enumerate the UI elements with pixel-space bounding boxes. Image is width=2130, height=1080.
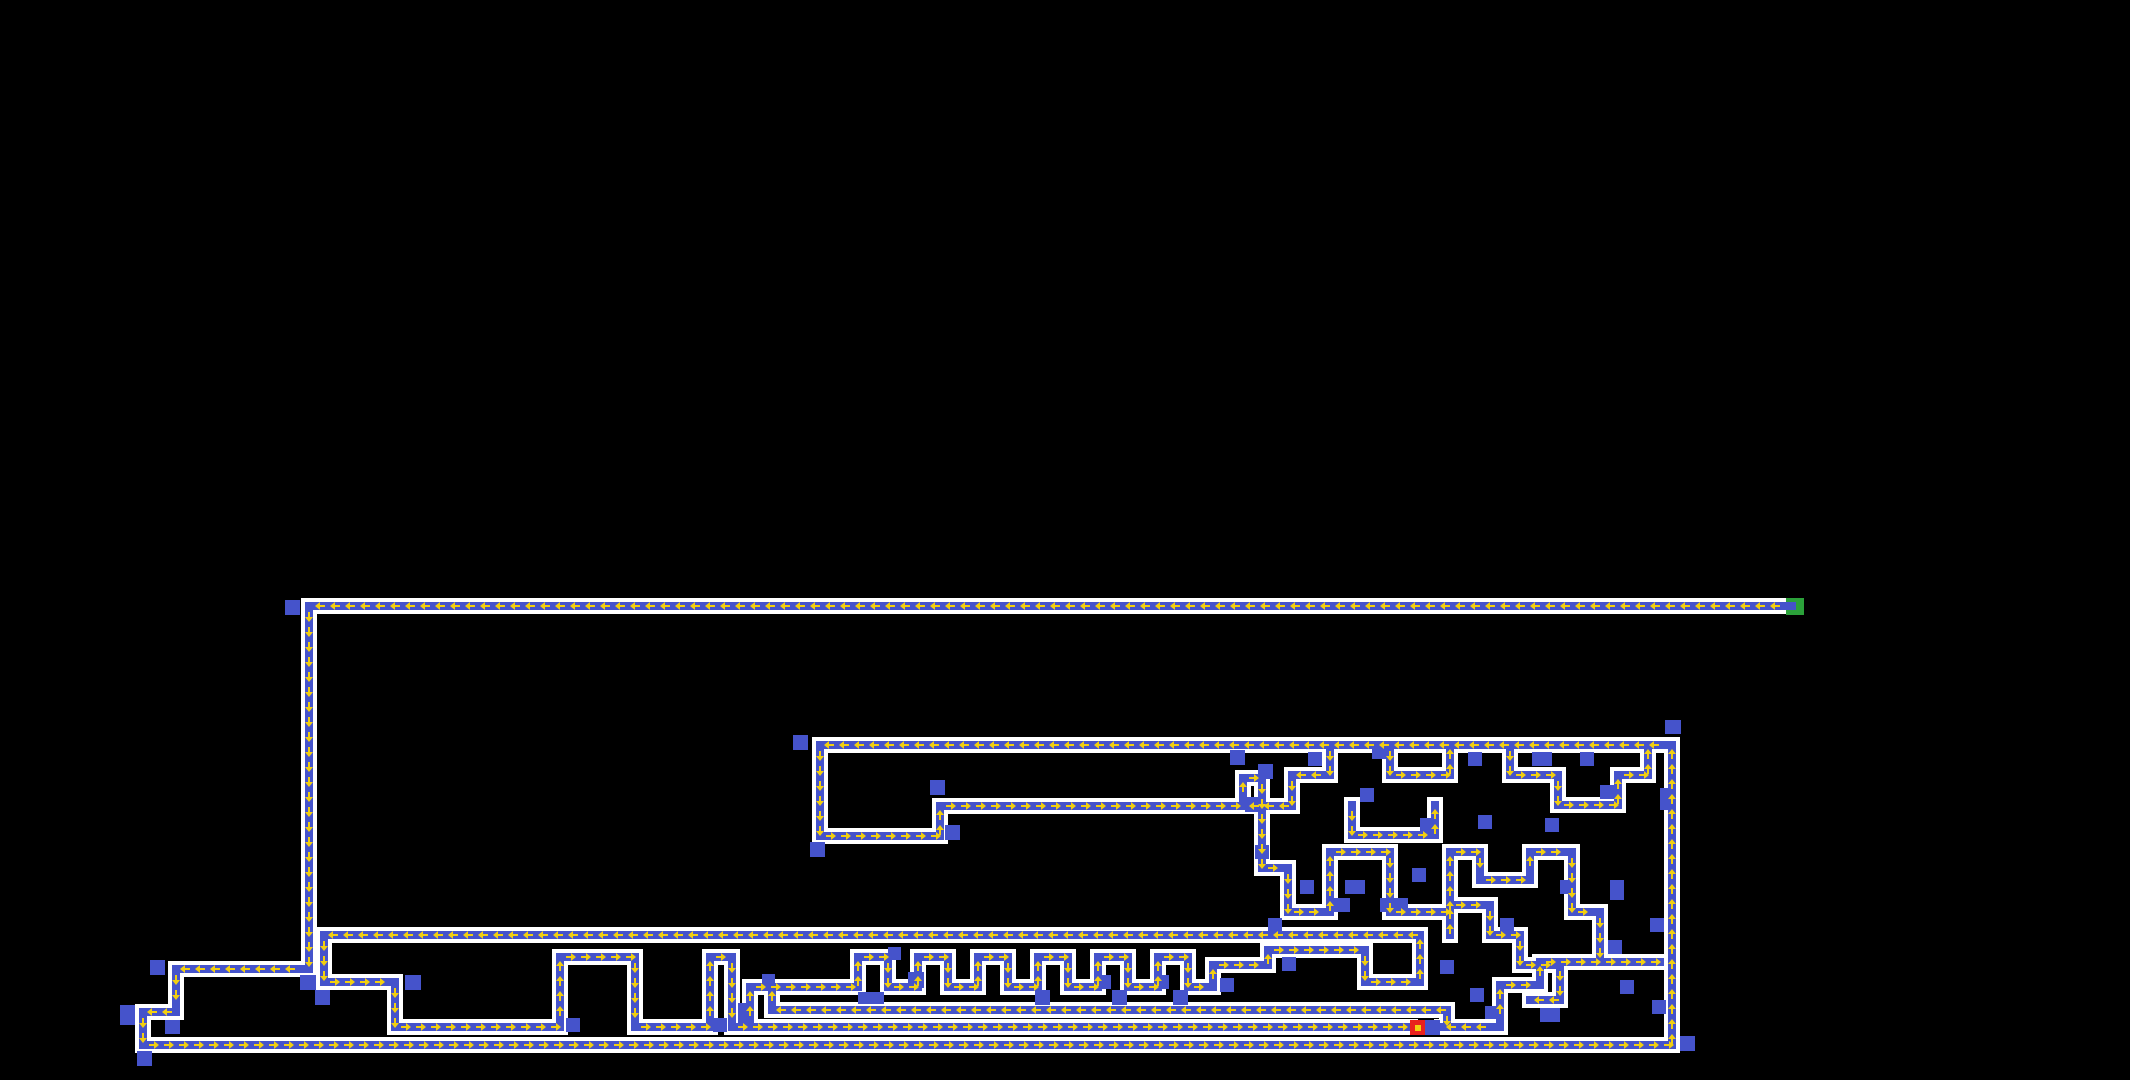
corridor-path [816, 741, 1676, 749]
blue-block [1230, 750, 1245, 765]
blue-block [810, 842, 825, 857]
corridor-path [139, 1041, 1676, 1049]
blue-block [908, 972, 924, 988]
blue-block [1035, 990, 1050, 1005]
blue-block [315, 990, 330, 1005]
blue-block [150, 960, 165, 975]
corridor-path [631, 953, 639, 1031]
blue-block [137, 1051, 152, 1066]
corridor-path [556, 953, 639, 961]
blue-block [1372, 745, 1392, 759]
blue-block [1665, 720, 1681, 734]
blue-block [1300, 880, 1314, 894]
corridor-path [1348, 831, 1439, 839]
corridor-path [768, 1006, 1451, 1014]
blue-block [738, 1003, 749, 1027]
blue-block [1097, 975, 1111, 989]
corridor-path [320, 978, 399, 986]
blue-block [1485, 1006, 1499, 1019]
corridor-path [1416, 931, 1424, 986]
blue-block [165, 1020, 180, 1034]
blue-block [1155, 975, 1169, 989]
blue-block [1412, 868, 1426, 882]
blue-block [1468, 752, 1482, 766]
corridor-path [1554, 801, 1622, 809]
blue-block [1560, 880, 1574, 894]
corridor-path [1438, 1023, 1504, 1031]
corridor-path [1596, 958, 1664, 966]
corridor-path [320, 931, 1424, 939]
blue-block [1112, 990, 1127, 1005]
blue-block [1425, 1020, 1440, 1035]
corridor-path [307, 602, 1796, 610]
blue-block [1540, 1008, 1560, 1022]
blue-block [300, 975, 316, 990]
blue-block [120, 1005, 135, 1025]
blue-block [1610, 880, 1624, 900]
corridor-path [816, 741, 824, 840]
blue-block [945, 825, 960, 840]
blue-block [1660, 788, 1674, 810]
corridor-path [768, 983, 776, 1014]
blue-block [566, 1018, 580, 1032]
blue-block [888, 947, 901, 960]
blue-block [1650, 918, 1664, 932]
corridor-path [1209, 961, 1272, 969]
blue-block [1220, 978, 1234, 992]
blue-block [1680, 1036, 1695, 1051]
blue-block [1308, 752, 1322, 766]
corridor-path [1264, 946, 1369, 954]
corridor-path [631, 1023, 714, 1031]
blue-block [1580, 752, 1594, 766]
blue-block [1652, 1000, 1666, 1014]
corridor-path [728, 953, 736, 1031]
blue-block [1440, 960, 1454, 974]
blue-block [1360, 788, 1374, 802]
corridor-path [1644, 741, 1652, 779]
maze-canvas [0, 0, 2130, 1080]
corridor-path [936, 802, 1247, 810]
corridor-path [816, 832, 944, 840]
corridor-path [1386, 771, 1454, 779]
corridor-path [305, 602, 313, 973]
corridor-path [391, 1023, 564, 1031]
blue-block [762, 974, 775, 987]
blue-block [1258, 764, 1273, 779]
corridor-path [1361, 978, 1424, 986]
blue-block [1608, 940, 1622, 954]
corridor-path [1526, 996, 1564, 1004]
blue-block [1545, 818, 1559, 832]
blue-block [1380, 898, 1408, 912]
corridor-path [728, 1023, 1414, 1031]
corridor-path [172, 965, 313, 973]
blue-block [1500, 918, 1514, 932]
blue-block [1245, 797, 1260, 812]
blue-block [793, 735, 808, 750]
blue-block [285, 600, 300, 615]
blue-block [1282, 957, 1296, 971]
corridor-path [556, 953, 564, 1031]
blue-block [1532, 752, 1552, 766]
blue-block [1345, 880, 1365, 894]
blue-block [1620, 980, 1634, 994]
blue-block [1330, 898, 1350, 912]
corridor-path [1446, 741, 1454, 779]
blue-block [1478, 815, 1492, 829]
blue-block [713, 1018, 727, 1032]
blue-block [1470, 988, 1484, 1002]
blue-block [858, 992, 884, 1004]
blue-block [1255, 845, 1269, 859]
corridor-path [1326, 848, 1394, 856]
blue-block [930, 780, 945, 795]
blue-block [1173, 990, 1188, 1005]
blue-block [1600, 785, 1614, 799]
blue-block [405, 975, 421, 990]
agent-position-icon [1415, 1025, 1421, 1031]
blue-block [1420, 818, 1434, 832]
blue-block [1268, 918, 1282, 932]
